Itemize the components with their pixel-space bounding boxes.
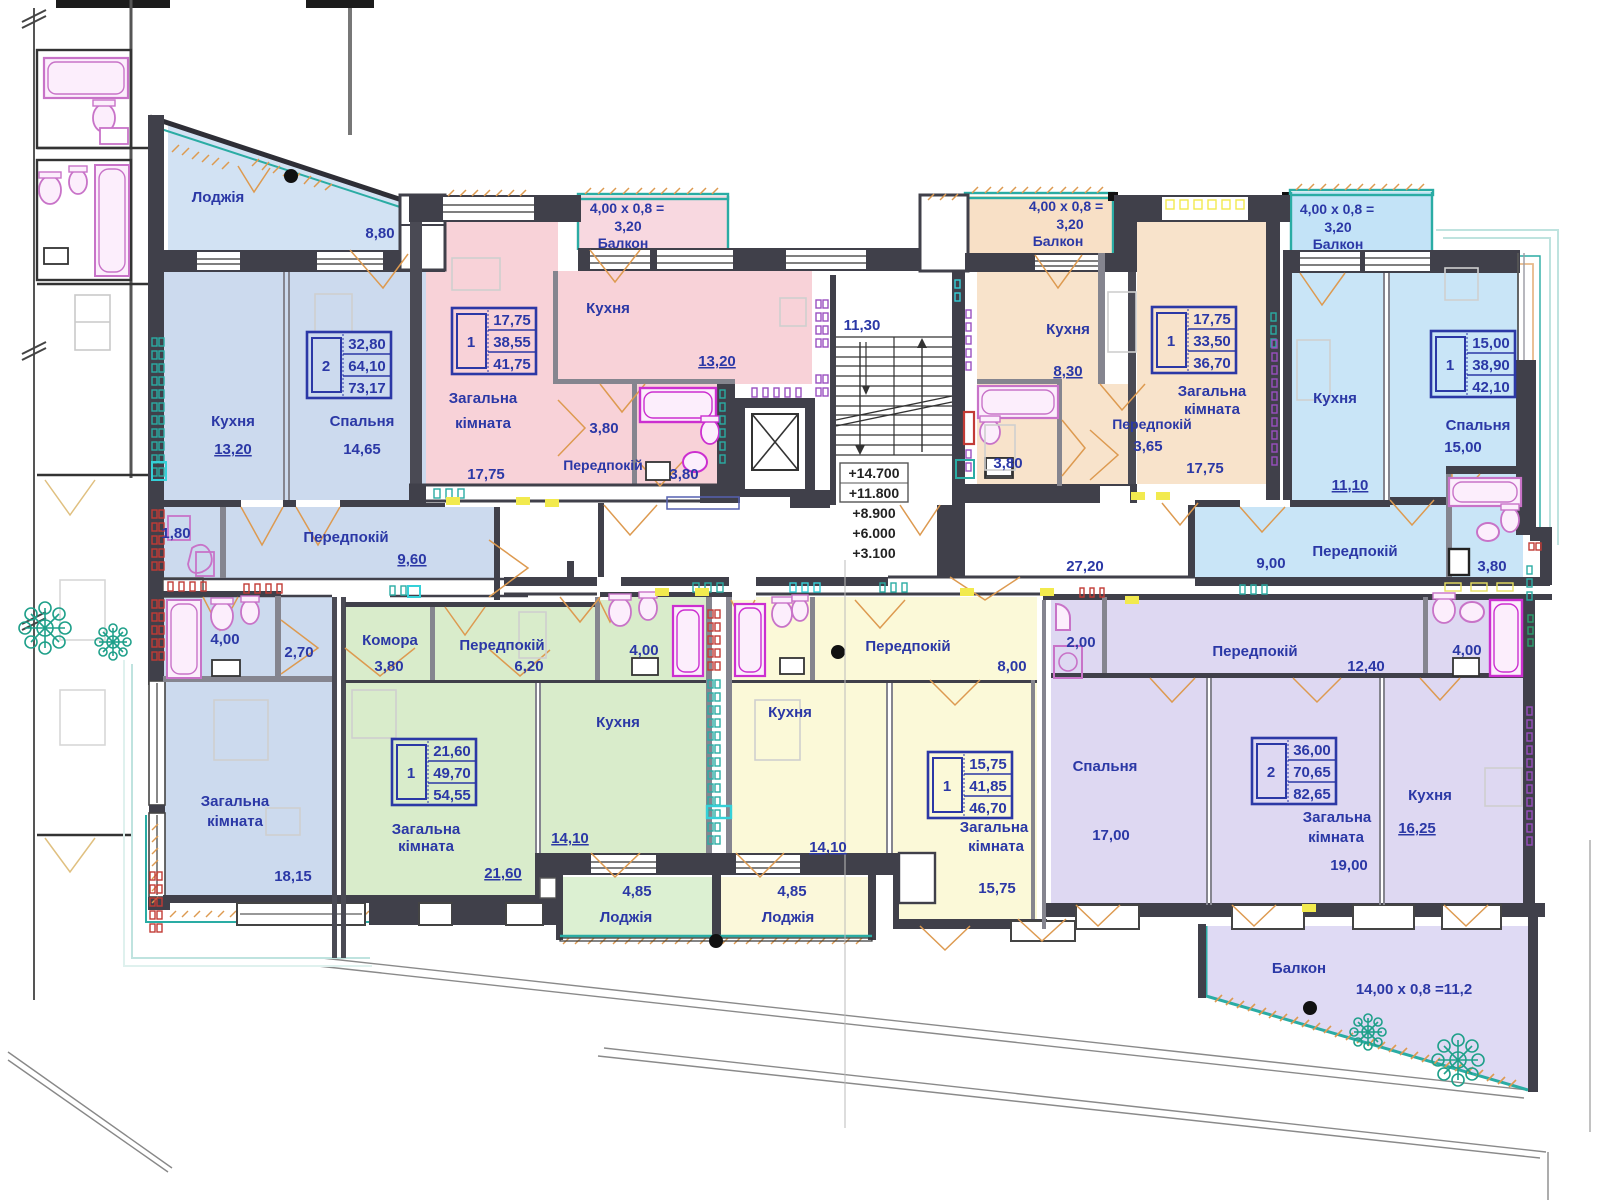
svg-text:Кухня: Кухня: [1046, 321, 1090, 338]
svg-text:1: 1: [943, 778, 951, 795]
svg-text:32,80: 32,80: [348, 336, 386, 353]
svg-text:15,00: 15,00: [1472, 335, 1510, 352]
svg-text:49,70: 49,70: [433, 765, 471, 782]
svg-text:3,80: 3,80: [669, 466, 698, 483]
svg-text:82,65: 82,65: [1293, 786, 1331, 803]
svg-text:12,40: 12,40: [1347, 658, 1385, 675]
svg-text:42,10: 42,10: [1472, 379, 1510, 396]
svg-text:Кухня: Кухня: [1313, 390, 1357, 407]
svg-text:3,20: 3,20: [614, 218, 641, 234]
svg-text:64,10: 64,10: [348, 358, 386, 375]
svg-text:14,10: 14,10: [809, 839, 847, 856]
svg-text:Спальня: Спальня: [1073, 758, 1138, 775]
svg-text:Комора: Комора: [362, 632, 418, 649]
svg-text:Передпокій: Передпокій: [1212, 643, 1297, 660]
svg-text:14,65: 14,65: [343, 441, 381, 458]
svg-text:Кухня: Кухня: [586, 300, 630, 317]
svg-text:3,80: 3,80: [589, 420, 618, 437]
svg-text:Балкон: Балкон: [1033, 233, 1084, 249]
svg-text:13,20: 13,20: [698, 353, 736, 370]
svg-text:+14.700: +14.700: [849, 465, 900, 481]
svg-text:9,00: 9,00: [1256, 555, 1285, 572]
svg-text:2: 2: [322, 358, 330, 375]
svg-text:36,70: 36,70: [1193, 355, 1231, 372]
svg-text:Загальна: Загальна: [392, 821, 461, 838]
svg-text:Балкон: Балкон: [598, 235, 649, 251]
svg-text:41,85: 41,85: [969, 778, 1007, 795]
svg-text:Передпокій: Передпокій: [1112, 416, 1192, 432]
svg-text:18,15: 18,15: [274, 868, 312, 885]
svg-text:+6.000: +6.000: [852, 525, 895, 541]
svg-text:33,50: 33,50: [1193, 333, 1231, 350]
svg-text:Лоджія: Лоджія: [600, 909, 653, 926]
svg-text:15,00: 15,00: [1444, 439, 1482, 456]
svg-text:+11.800: +11.800: [849, 485, 899, 501]
svg-text:Передпокій: Передпокій: [865, 638, 950, 655]
svg-text:4,00 х 0,8 =: 4,00 х 0,8 =: [1029, 198, 1103, 214]
svg-text:кімната: кімната: [398, 838, 455, 855]
svg-text:17,75: 17,75: [1186, 460, 1224, 477]
svg-text:8,30: 8,30: [1053, 363, 1082, 380]
svg-text:Спальня: Спальня: [330, 413, 395, 430]
svg-text:6,20: 6,20: [514, 658, 543, 675]
svg-text:3,80: 3,80: [374, 658, 403, 675]
svg-text:+3.100: +3.100: [852, 545, 895, 561]
svg-text:36,00: 36,00: [1293, 742, 1331, 759]
svg-text:17,75: 17,75: [1193, 311, 1231, 328]
svg-text:Кухня: Кухня: [768, 704, 812, 721]
svg-text:27,20: 27,20: [1066, 558, 1104, 575]
svg-text:Спальня: Спальня: [1446, 417, 1511, 434]
svg-text:Загальна: Загальна: [1178, 383, 1247, 400]
svg-text:4,00 х 0,8 =: 4,00 х 0,8 =: [1300, 201, 1374, 217]
svg-text:Загальна: Загальна: [960, 819, 1029, 836]
svg-text:3,65: 3,65: [1133, 438, 1162, 455]
svg-text:54,55: 54,55: [433, 787, 471, 804]
svg-text:4,00: 4,00: [210, 631, 239, 648]
svg-text:3,20: 3,20: [1324, 219, 1351, 235]
svg-text:21,60: 21,60: [433, 743, 471, 760]
svg-text:16,25: 16,25: [1398, 820, 1436, 837]
svg-text:11,10: 11,10: [1332, 477, 1369, 494]
svg-text:11,30: 11,30: [844, 317, 881, 334]
svg-text:3,80: 3,80: [1477, 558, 1506, 575]
svg-text:кімната: кімната: [455, 415, 512, 432]
svg-text:Лоджія: Лоджія: [762, 909, 815, 926]
svg-text:Загальна: Загальна: [1303, 809, 1372, 826]
svg-text:17,75: 17,75: [467, 466, 505, 483]
svg-text:Балкон: Балкон: [1272, 960, 1326, 977]
svg-text:4,00: 4,00: [629, 642, 658, 659]
svg-text:46,70: 46,70: [969, 800, 1007, 817]
svg-text:кімната: кімната: [207, 813, 264, 830]
svg-text:Балкон: Балкон: [1313, 236, 1364, 252]
svg-text:41,75: 41,75: [493, 356, 531, 373]
svg-text:2,70: 2,70: [284, 644, 313, 661]
svg-text:3,20: 3,20: [1056, 216, 1083, 232]
svg-text:2: 2: [1267, 764, 1275, 781]
svg-text:кімната: кімната: [1308, 829, 1365, 846]
svg-text:кімната: кімната: [1184, 401, 1241, 418]
svg-text:кімната: кімната: [968, 838, 1025, 855]
svg-text:8,80: 8,80: [365, 225, 394, 242]
svg-text:1: 1: [1446, 357, 1454, 374]
svg-text:3,80: 3,80: [993, 455, 1022, 472]
svg-text:70,65: 70,65: [1293, 764, 1331, 781]
svg-text:1: 1: [407, 765, 415, 782]
svg-text:Передпокій: Передпокій: [1312, 543, 1397, 560]
svg-text:9,60: 9,60: [397, 551, 426, 568]
svg-text:38,90: 38,90: [1472, 357, 1510, 374]
svg-text:8,00: 8,00: [997, 658, 1026, 675]
svg-text:Кухня: Кухня: [596, 714, 640, 731]
svg-text:38,55: 38,55: [493, 334, 531, 351]
svg-text:Передпокій: Передпокій: [459, 637, 544, 654]
svg-text:73,17: 73,17: [348, 380, 386, 397]
svg-text:19,00: 19,00: [1330, 857, 1368, 874]
svg-text:Передпокій: Передпокій: [563, 457, 643, 473]
svg-text:15,75: 15,75: [969, 756, 1007, 773]
svg-text:15,75: 15,75: [978, 880, 1016, 897]
svg-text:Кухня: Кухня: [1408, 787, 1452, 804]
svg-text:17,75: 17,75: [493, 312, 531, 329]
svg-text:14,10: 14,10: [551, 830, 589, 847]
svg-text:1: 1: [467, 334, 475, 351]
svg-text:1,80: 1,80: [161, 525, 190, 542]
svg-text:1: 1: [1167, 333, 1175, 350]
svg-text:4,85: 4,85: [777, 883, 806, 900]
svg-text:Кухня: Кухня: [211, 413, 255, 430]
svg-text:4,00 х 0,8 =: 4,00 х 0,8 =: [590, 200, 664, 216]
svg-text:Лоджія: Лоджія: [192, 189, 245, 206]
svg-text:4,85: 4,85: [622, 883, 651, 900]
svg-text:4,00: 4,00: [1452, 642, 1481, 659]
svg-text:13,20: 13,20: [214, 441, 252, 458]
svg-text:Передпокій: Передпокій: [303, 529, 388, 546]
svg-text:14,00 х 0,8 =11,2: 14,00 х 0,8 =11,2: [1356, 981, 1472, 998]
svg-text:Загальна: Загальна: [201, 793, 270, 810]
svg-text:Загальна: Загальна: [449, 390, 518, 407]
svg-text:+8.900: +8.900: [852, 505, 895, 521]
svg-text:17,00: 17,00: [1092, 827, 1130, 844]
svg-text:2,00: 2,00: [1066, 634, 1095, 651]
svg-text:21,60: 21,60: [484, 865, 522, 882]
